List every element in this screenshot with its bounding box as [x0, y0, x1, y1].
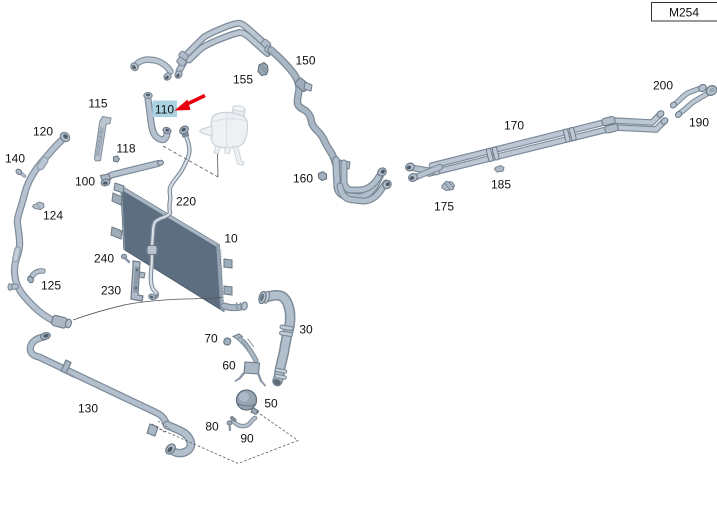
svg-text:124: 124	[43, 209, 63, 223]
svg-text:130: 130	[78, 402, 98, 416]
svg-text:170: 170	[504, 119, 524, 133]
svg-text:200: 200	[653, 79, 673, 93]
svg-text:160: 160	[293, 172, 313, 186]
svg-text:240: 240	[94, 252, 114, 266]
svg-text:220: 220	[176, 195, 196, 209]
svg-text:M254: M254	[669, 6, 699, 20]
svg-text:10: 10	[224, 232, 238, 246]
svg-text:185: 185	[491, 178, 511, 192]
svg-text:140: 140	[5, 152, 25, 166]
svg-text:190: 190	[689, 116, 709, 130]
svg-text:50: 50	[264, 397, 278, 411]
svg-text:125: 125	[41, 279, 61, 293]
svg-text:120: 120	[33, 125, 53, 139]
svg-text:155: 155	[233, 73, 253, 87]
svg-text:175: 175	[434, 200, 454, 214]
svg-text:60: 60	[222, 359, 236, 373]
svg-text:100: 100	[75, 175, 95, 189]
svg-text:80: 80	[205, 420, 219, 434]
svg-text:110: 110	[155, 103, 174, 117]
svg-text:30: 30	[299, 323, 313, 337]
svg-text:230: 230	[101, 284, 121, 298]
svg-text:118: 118	[116, 142, 135, 156]
svg-text:115: 115	[88, 97, 107, 111]
svg-text:90: 90	[240, 432, 254, 446]
svg-text:150: 150	[295, 54, 315, 68]
svg-text:70: 70	[204, 332, 218, 346]
